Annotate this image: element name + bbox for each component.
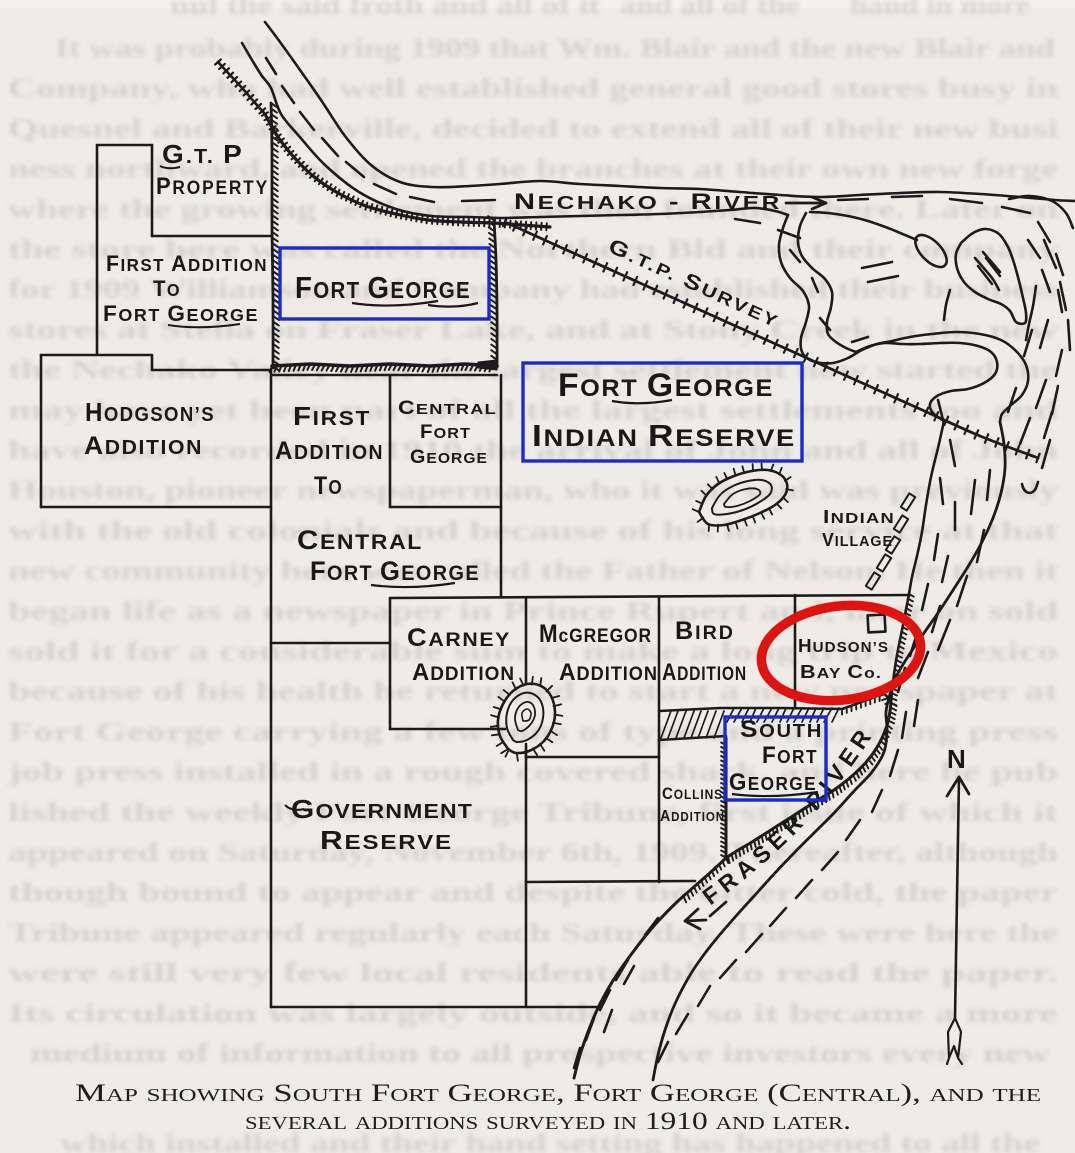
svg-text:appeared on Saturday, November: appeared on Saturday, November 6th, 1909… [8, 837, 1058, 867]
svg-text:ADDITION: ADDITION [660, 808, 725, 825]
svg-text:new community here was called: new community here was called the Father… [8, 556, 1058, 586]
svg-text:nul the said froth and all of: nul the said froth and all of it [170, 0, 600, 20]
svg-text:CARNEY: CARNEY [407, 624, 511, 652]
svg-text:TO: TO [314, 472, 343, 500]
svg-text:several additions surveyed in: several additions surveyed in 1910 and l… [245, 1108, 851, 1135]
svg-text:ADDITION: ADDITION [275, 437, 384, 465]
svg-text:ADDITION: ADDITION [559, 659, 658, 686]
svg-text:SOUTH: SOUTH [740, 716, 823, 743]
svg-text:COLLINS: COLLINS [662, 784, 723, 803]
svg-text:lished the weekly Fort George: lished the weekly Fort George Tribune, f… [8, 797, 1058, 827]
svg-text:It was probably during 1909 th: It was probably during 1909 that Wm. Bla… [55, 33, 1055, 63]
svg-text:FORT: FORT [762, 742, 818, 769]
svg-text:FORT GEORGE: FORT GEORGE [103, 301, 259, 326]
svg-text:were still very few local resi: were still very few local residents able… [8, 958, 1058, 988]
svg-text:N: N [947, 744, 968, 774]
svg-text:GEORGE: GEORGE [410, 447, 488, 468]
svg-text:ADDITION: ADDITION [84, 432, 203, 460]
svg-text:Map showing South Fort George,: Map showing South Fort George, Fort Geor… [75, 1080, 1041, 1107]
svg-text:ADDITION: ADDITION [412, 659, 515, 686]
svg-text:BIRD: BIRD [675, 617, 735, 645]
svg-text:hand in more: hand in more [850, 0, 1030, 20]
svg-text:Tribune appeared regularly eac: Tribune appeared regularly each Saturday… [8, 917, 1058, 947]
svg-text:GEORGE: GEORGE [729, 769, 817, 796]
svg-text:ADDITION: ADDITION [662, 659, 747, 686]
svg-text:CENTRAL: CENTRAL [398, 398, 497, 419]
svg-text:PROPERTY: PROPERTY [156, 173, 269, 200]
svg-text:medium of information to all p: medium of information to all prospective… [30, 1038, 1051, 1068]
svg-text:and all of the: and all of the [620, 0, 800, 20]
svg-text:TO: TO [153, 276, 181, 301]
svg-text:FIRST ADDITION: FIRST ADDITION [106, 251, 268, 276]
svg-text:Its circulation was largely ou: Its circulation was largely outside, and… [8, 998, 1058, 1028]
svg-text:NECHAKO - RIVER: NECHAKO - RIVER [514, 189, 782, 214]
svg-text:Houston, pioneer newspaperman,: Houston, pioneer newspaperman, who it wa… [8, 475, 1059, 505]
svg-text:FORT: FORT [420, 422, 471, 443]
svg-text:job press installed in a rough: job press installed in a rough covered s… [7, 757, 1058, 787]
svg-text:Company, who had well establis: Company, who had well established genera… [8, 73, 1058, 103]
svg-text:McGREGOR: McGREGOR [539, 620, 652, 648]
